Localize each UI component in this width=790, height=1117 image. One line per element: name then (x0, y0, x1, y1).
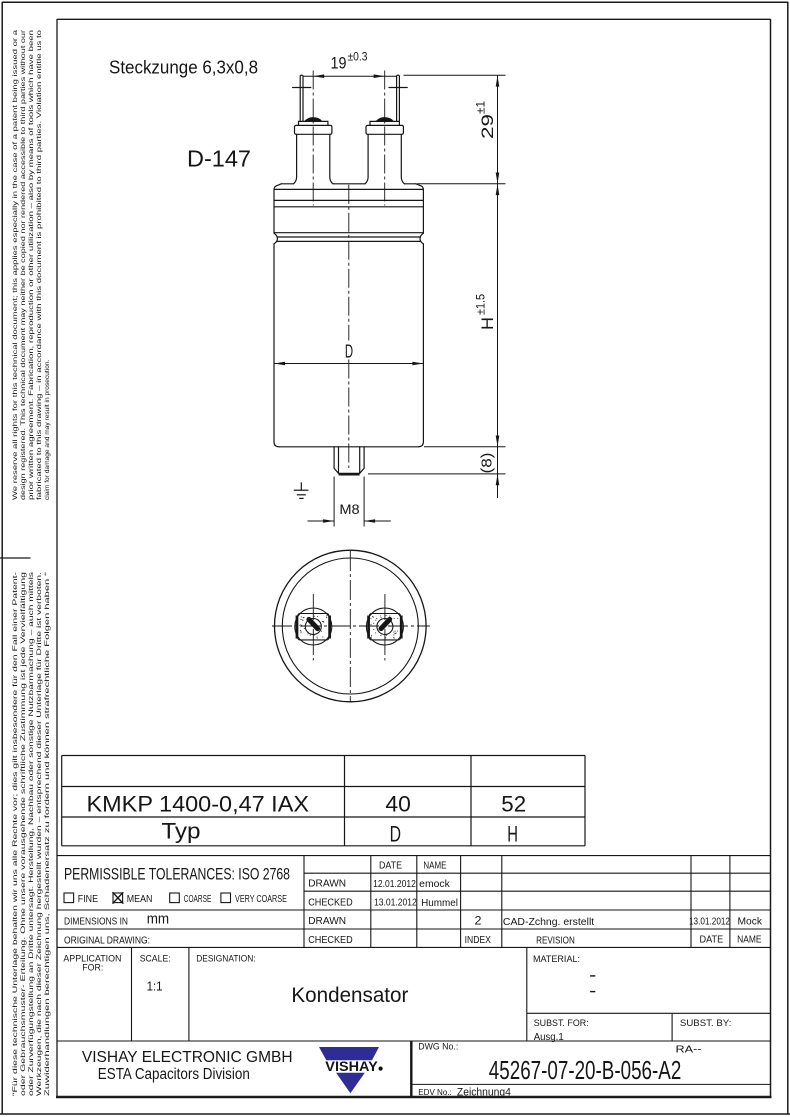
svg-text:Zeichnung4: Zeichnung4 (457, 1086, 511, 1098)
svg-text:VISHAY: VISHAY (325, 1059, 378, 1074)
svg-text:Werkzeugen, die nach dieser Ze: Werkzeugen, die nach dieser Zeichnung he… (36, 572, 43, 1096)
svg-text:Steckzunge 6,3x0,8: Steckzunge 6,3x0,8 (109, 57, 258, 78)
svg-text:DWG No.:: DWG No.: (418, 1042, 458, 1052)
svg-text:29: 29 (478, 114, 497, 139)
svg-text:REVISION: REVISION (536, 935, 575, 946)
svg-text:VERY COARSE: VERY COARSE (235, 894, 287, 905)
svg-text:DIMENSIONS IN: DIMENSIONS IN (64, 917, 128, 928)
svg-text:40: 40 (385, 792, 411, 817)
svg-text:FOR:: FOR: (82, 963, 103, 974)
svg-text:Typ: Typ (161, 819, 200, 844)
svg-text:2: 2 (475, 914, 482, 928)
svg-text:DRAWN: DRAWN (308, 879, 346, 890)
svg-text:FINE: FINE (78, 894, 98, 905)
svg-text:Zuwiderhandlungen berechtigen: Zuwiderhandlungen berechtigen uns, Schad… (44, 572, 51, 1096)
svg-text:±1.5: ±1.5 (476, 294, 488, 315)
svg-text:PERMISSIBLE TOLERANCES: ISO 27: PERMISSIBLE TOLERANCES: ISO 2768 (64, 865, 290, 884)
svg-text:“Für diese technische Unterlag: “Für diese technische Unterlage behalten… (12, 572, 19, 1096)
svg-text:DATE: DATE (379, 860, 402, 871)
svg-text:13.01.2012: 13.01.2012 (689, 917, 730, 928)
svg-text:CAD-Zchng. erstellt: CAD-Zchng. erstellt (503, 917, 594, 928)
svg-text:(8): (8) (480, 453, 496, 474)
svg-text:SCALE:: SCALE: (140, 953, 171, 964)
svg-text:VISHAY ELECTRONIC GMBH: VISHAY ELECTRONIC GMBH (82, 1049, 293, 1066)
svg-text:We reserve all rights for this: We reserve all rights for this technical… (12, 30, 19, 500)
svg-text:±0.3: ±0.3 (348, 52, 368, 64)
svg-text:NAME: NAME (737, 935, 762, 946)
svg-text:RA--: RA-- (676, 1044, 703, 1056)
svg-text:mm: mm (147, 912, 169, 928)
svg-text:DESIGNATION:: DESIGNATION: (196, 953, 256, 964)
svg-text:ESTA Capacitors Division: ESTA Capacitors Division (98, 1066, 250, 1083)
svg-text:EDV No.:: EDV No.: (418, 1087, 452, 1097)
svg-text:DATE: DATE (700, 935, 724, 946)
svg-text:fabricated to this drawing – i: fabricated to this drawing – in accordan… (36, 30, 43, 500)
svg-text:prior written agreement. Fabri: prior written agreement. Fabrication, re… (28, 30, 35, 500)
svg-text:Ausg.1: Ausg.1 (534, 1031, 564, 1043)
svg-text:INDEX: INDEX (465, 935, 491, 946)
svg-text:1:1: 1:1 (147, 980, 163, 994)
svg-text:12.01.2012: 12.01.2012 (373, 879, 416, 890)
svg-text:M8: M8 (339, 502, 360, 517)
svg-text:45267-07-20-B-056-A2: 45267-07-20-B-056-A2 (489, 1055, 682, 1085)
svg-text:SUBST. BY:: SUBST. BY: (680, 1018, 732, 1029)
svg-text:KMKP 1400-0,47 IAX: KMKP 1400-0,47 IAX (87, 792, 310, 817)
svg-text:52: 52 (501, 792, 526, 817)
svg-text:ORIGINAL DRAWING:: ORIGINAL DRAWING: (64, 936, 150, 947)
svg-text:D: D (390, 822, 401, 847)
svg-text:Kondensator: Kondensator (291, 984, 408, 1007)
svg-text:MATERIAL:: MATERIAL: (533, 954, 580, 965)
svg-text:design registered. This techni: design registered. This technical docume… (20, 29, 27, 500)
svg-text:Hummel: Hummel (421, 898, 458, 909)
svg-text:claim for damage and may resul: claim for damage and may result in prose… (44, 359, 51, 500)
svg-text:D-147: D-147 (187, 146, 251, 172)
svg-text:H: H (507, 822, 518, 847)
svg-text:oder Zurverfügungstellung an D: oder Zurverfügungstellung an Dritte unte… (28, 571, 35, 1096)
svg-text:±1: ±1 (476, 101, 488, 114)
svg-text:13.01.2012: 13.01.2012 (374, 898, 417, 909)
svg-text:emock: emock (419, 879, 450, 890)
svg-text:SUBST. FOR:: SUBST. FOR: (534, 1018, 589, 1029)
svg-text:19: 19 (331, 53, 347, 72)
svg-text:D: D (345, 341, 353, 361)
svg-text:MEAN: MEAN (127, 894, 153, 905)
svg-text:COARSE: COARSE (184, 894, 212, 905)
svg-text:Mock: Mock (738, 917, 763, 928)
svg-text:oder Gebrauchsmuster- Erteilun: oder Gebrauchsmuster- Erteilung. Ohne un… (20, 571, 27, 1096)
svg-text:H: H (478, 317, 497, 330)
svg-text:NAME: NAME (423, 860, 446, 871)
svg-text:CHECKED: CHECKED (308, 935, 353, 946)
svg-text:CHECKED: CHECKED (308, 897, 353, 908)
svg-text:DRAWN: DRAWN (308, 916, 346, 927)
